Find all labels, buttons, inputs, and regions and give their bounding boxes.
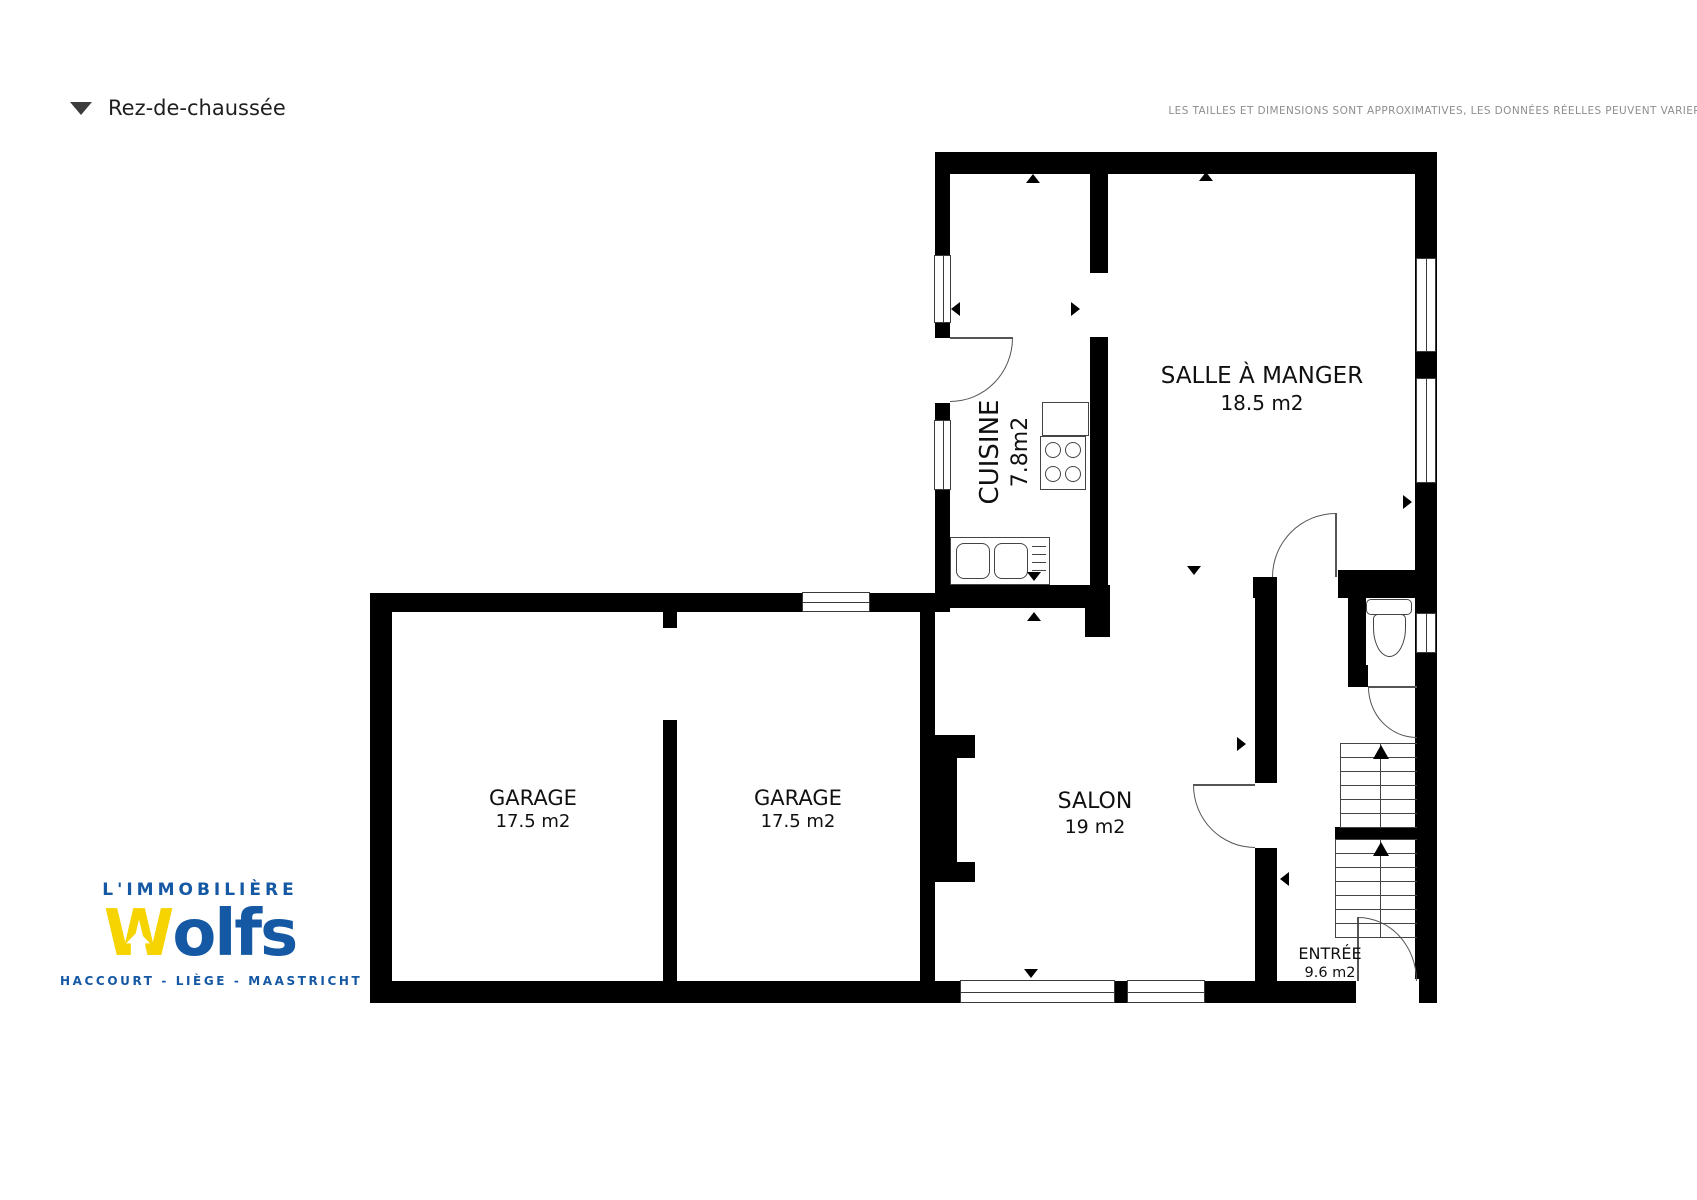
room-label-cuisine: CUISINE 7.8m2	[974, 367, 1030, 537]
room-label-garage-2: GARAGE 17.5 m2	[668, 785, 928, 834]
room-label-salon: SALON 19 m2	[965, 788, 1225, 839]
marker-triangle	[1237, 737, 1246, 751]
room-label-garage-1: GARAGE 17.5 m2	[403, 785, 663, 834]
marker-triangle	[1027, 572, 1041, 581]
window	[1416, 258, 1436, 352]
logo-wordmark: Wolfs	[60, 902, 340, 966]
room-label-entree: ENTRÉE 9.6 m2	[1255, 944, 1405, 982]
wall	[370, 593, 392, 1003]
marker-triangle	[1027, 612, 1041, 621]
wall	[935, 585, 1110, 608]
stove-burner	[1045, 466, 1061, 482]
door-opening	[1253, 783, 1279, 848]
toilet-tank	[1366, 599, 1412, 615]
window	[934, 255, 951, 323]
wall	[935, 152, 1437, 174]
marker-triangle	[1187, 566, 1201, 575]
sink-basin	[956, 543, 990, 579]
wall	[1348, 665, 1368, 687]
wall	[663, 612, 677, 628]
wall	[1090, 337, 1108, 608]
window	[1416, 378, 1436, 483]
door-arc	[1272, 513, 1336, 577]
marker-triangle	[951, 302, 960, 316]
stove-burner	[1045, 442, 1061, 458]
wall	[663, 720, 677, 981]
wall	[370, 981, 1437, 1003]
stove-burner	[1065, 442, 1081, 458]
kitchen-counter	[1042, 402, 1089, 436]
agency-logo: L'IMMOBILIÈRE Wolfs HACCOURT - LIÈGE - M…	[60, 880, 340, 988]
room-label-salle-a-manger: SALLE À MANGER 18.5 m2	[1112, 362, 1412, 416]
marker-triangle	[1026, 174, 1040, 183]
door-arc	[1368, 687, 1417, 738]
logo-tagline: HACCOURT - LIÈGE - MAASTRICHT	[60, 974, 340, 988]
marker-triangle	[1280, 872, 1289, 886]
marker-triangle	[1199, 172, 1213, 181]
door-opening	[1356, 979, 1419, 1005]
stairs-up-arrow	[1373, 842, 1389, 856]
window	[934, 420, 951, 490]
marker-triangle	[1403, 495, 1412, 509]
floor-plan: CUISINE 7.8m2 SALLE À MANGER 18.5 m2 GAR…	[0, 0, 1697, 1200]
wall	[1085, 608, 1110, 637]
window	[960, 980, 1115, 1003]
stair-separator	[1335, 827, 1417, 839]
wall	[1255, 577, 1277, 783]
stove-burner	[1065, 466, 1081, 482]
wall	[1090, 174, 1108, 273]
sink-basin	[994, 543, 1028, 579]
window	[1416, 613, 1436, 653]
window	[802, 592, 870, 612]
floor-plan-page: Rez-de-chaussée LES TAILLES ET DIMENSION…	[0, 0, 1697, 1200]
logo-w-letter: W	[104, 902, 173, 966]
window	[1127, 980, 1205, 1003]
toilet-bowl	[1373, 614, 1406, 657]
logo-rest-letters: olfs	[172, 897, 296, 971]
wall	[1348, 570, 1366, 678]
stairs-up-arrow	[1373, 745, 1389, 759]
marker-triangle	[1024, 969, 1038, 978]
marker-triangle	[1071, 302, 1080, 316]
